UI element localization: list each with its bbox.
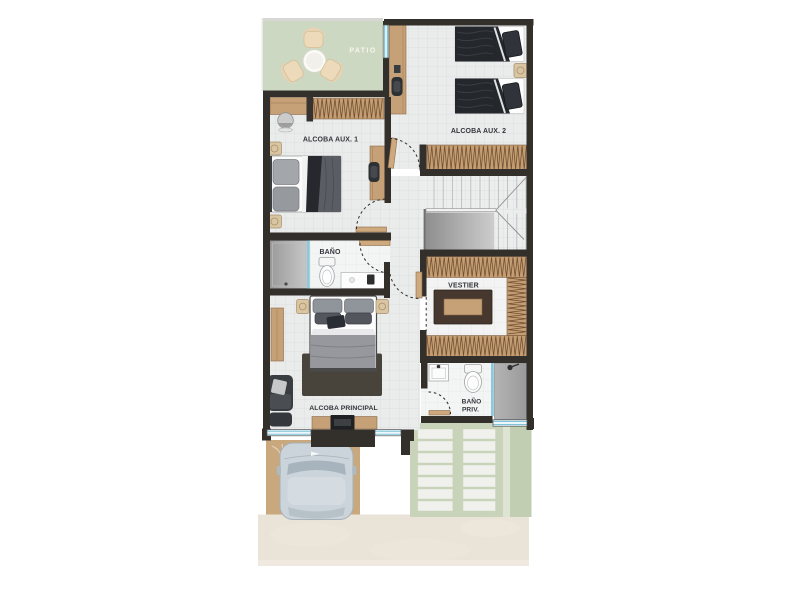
svg-text:ALCOBA AUX. 2: ALCOBA AUX. 2	[451, 128, 506, 135]
svg-text:ALCOBA AUX. 1: ALCOBA AUX. 1	[303, 137, 358, 144]
svg-text:BAÑO: BAÑO	[319, 247, 340, 256]
svg-text:VESTIER: VESTIER	[448, 283, 479, 290]
svg-text:PRIV.: PRIV.	[462, 407, 479, 414]
svg-text:ALCOBA PRINCIPAL: ALCOBA PRINCIPAL	[309, 405, 377, 412]
svg-text:BAÑO: BAÑO	[462, 397, 482, 406]
svg-text:PATIO: PATIO	[349, 48, 376, 55]
